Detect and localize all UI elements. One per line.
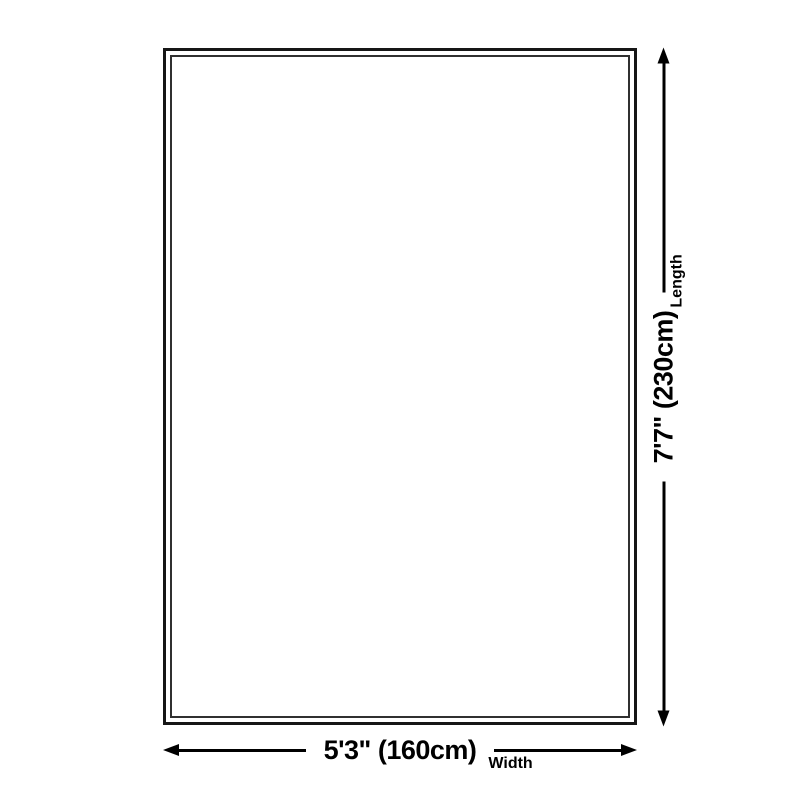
length-label: Length <box>669 254 685 307</box>
size-diagram: 7'7" (230cm) Length 5'3" (160cm) Width <box>0 0 800 800</box>
dimension-line: Width <box>494 749 621 752</box>
arrow-right-icon <box>621 744 637 756</box>
dimension-line: Length <box>662 64 665 293</box>
arrow-left-icon <box>163 744 179 756</box>
length-dimension-arrow: 7'7" (230cm) Length <box>658 48 670 727</box>
width-value: 5'3" (160cm) <box>306 737 495 764</box>
length-value: 7'7" (230cm) <box>650 293 677 482</box>
rug-outline <box>163 48 637 725</box>
rug-inner-border <box>170 55 630 718</box>
width-dimension-arrow: 5'3" (160cm) Width <box>163 744 637 756</box>
arrow-down-icon <box>658 711 670 727</box>
dimension-line <box>662 481 665 710</box>
width-label: Width <box>488 756 532 772</box>
dimension-line <box>179 749 306 752</box>
arrow-up-icon <box>658 48 670 64</box>
